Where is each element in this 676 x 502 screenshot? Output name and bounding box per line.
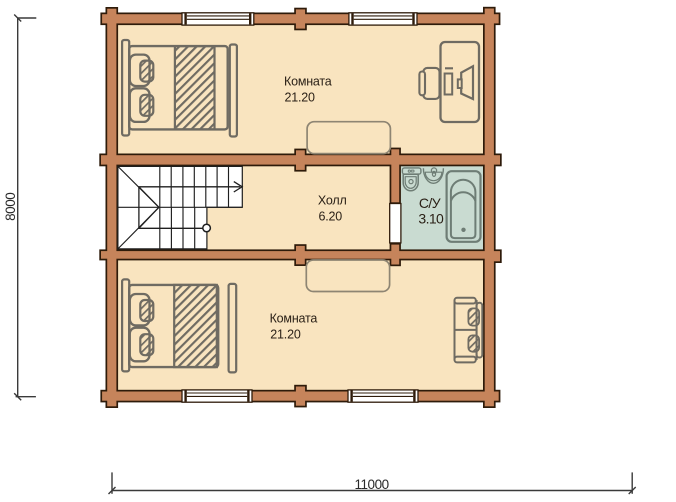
svg-text:8000: 8000 <box>3 193 18 221</box>
svg-text:С/У: С/У <box>419 195 441 211</box>
svg-text:Комната: Комната <box>284 74 332 88</box>
svg-text:11000: 11000 <box>354 477 388 492</box>
svg-text:21.20: 21.20 <box>270 328 301 342</box>
svg-text:Комната: Комната <box>270 312 318 326</box>
svg-text:21.20: 21.20 <box>285 90 316 104</box>
svg-text:Холл: Холл <box>318 193 347 207</box>
svg-text:3.10: 3.10 <box>418 211 444 227</box>
svg-text:6.20: 6.20 <box>319 210 343 224</box>
